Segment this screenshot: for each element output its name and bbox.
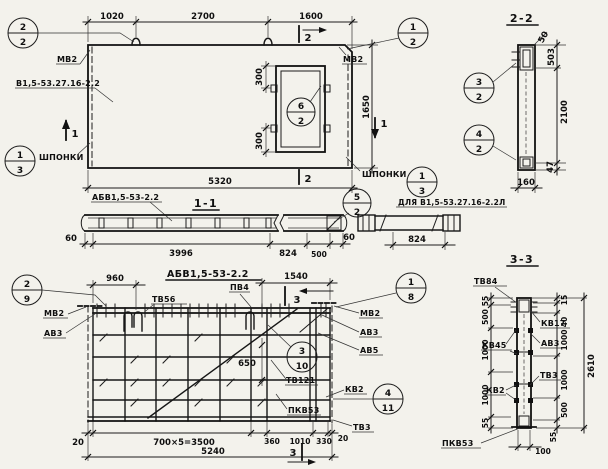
dim-824-detail: 824 (408, 235, 426, 245)
dim-1010: 1010 (290, 437, 311, 446)
cut-label-3: 3 (294, 295, 301, 306)
label-panel-mark: В1,5-53.27.16-2.2 (15, 79, 113, 102)
section-3-3: 3-3 55 500 1000 1000 55 (441, 253, 597, 456)
svg-text:КВ17: КВ17 (541, 319, 566, 328)
label-keys-right: ШПОНКИ (362, 170, 407, 179)
section-cut-1-right: 1 (371, 118, 388, 139)
label-pv4: ПВ4 (229, 283, 251, 307)
svg-text:ПКВ53: ПКВ53 (288, 406, 319, 415)
callout-num: 6 (298, 102, 304, 112)
svg-text:ПКВ53: ПКВ53 (442, 439, 473, 448)
cut-label-3: 3 (290, 448, 297, 459)
svg-text:КВ2: КВ2 (486, 386, 505, 395)
drawing-sheet: 300 300 1020 2700 1600 5320 1650 1 (0, 0, 608, 469)
dim-5320: 5320 (208, 177, 232, 187)
callout-num: 3 (299, 347, 305, 357)
section-cut-1-left: 1 (62, 119, 79, 140)
callout-3-2: 3 2 (464, 63, 516, 103)
label-mv2-right: МВ2 (339, 47, 367, 64)
svg-text:МВ2: МВ2 (57, 55, 77, 64)
dim-500-right: 500 (560, 402, 569, 418)
callout-num: 3 (476, 78, 482, 88)
callout-num: 4 (476, 130, 482, 140)
rebar-title: АБВ1,5-53-2.2 (167, 269, 249, 280)
dim-60-left: 60 (65, 234, 77, 244)
dim-330: 330 (316, 437, 332, 446)
section-2-2: 2-2 50 503 2100 47 160 3 (464, 12, 570, 193)
lifting-loop-icon (264, 38, 272, 45)
section-cut-2-bottom: 2 (299, 170, 312, 185)
dim-960: 960 (106, 274, 124, 284)
svg-text:ТВ84: ТВ84 (474, 277, 498, 286)
panel-plan-view: 300 300 1020 2700 1600 5320 1650 1 (5, 12, 437, 197)
callout-den: 3 (419, 187, 425, 197)
dim-500: 500 (311, 250, 327, 259)
reinforcement-plan: АБВ1,5-53-2.2 (12, 269, 426, 465)
svg-text:ТВ3: ТВ3 (353, 423, 371, 432)
callout-1-8: 1 8 (336, 273, 426, 307)
dim-5240: 5240 (201, 447, 225, 457)
cut-label-2: 2 (305, 33, 312, 44)
callout-keys-right: 1 3 ШПОНКИ (346, 157, 437, 197)
dim-55-top-left: 55 (481, 296, 490, 306)
svg-text:МВ2: МВ2 (343, 55, 363, 64)
callout-num: 1 (408, 278, 414, 288)
callout-den: 2 (476, 145, 482, 155)
dim-1600: 1600 (299, 12, 323, 22)
callout-4-2: 4 2 (464, 125, 516, 160)
cut-label-2: 2 (305, 174, 312, 185)
section-1-1-title: 1-1 (194, 197, 218, 210)
dim-100: 100 (535, 447, 551, 456)
section-cut-3-bottom: 3 (288, 444, 316, 465)
callout-den: 2 (298, 117, 304, 127)
label-tv3-section33: ТВ3 (530, 371, 561, 385)
svg-text:АВ3: АВ3 (44, 329, 62, 338)
label-tv3-rebar: ТВ3 (333, 420, 374, 432)
callout-keys-left: 1 3 ШПОНКИ (5, 143, 90, 176)
dim-2610: 2610 (587, 354, 597, 378)
rebar-hook-icon (134, 312, 142, 331)
dim-1000-right-b: 1000 (560, 370, 569, 391)
callout-6-2: 6 2 (287, 86, 321, 127)
rebar-hook-icon (246, 312, 254, 329)
callout-num: 4 (385, 389, 391, 399)
callout-den: 3 (17, 166, 23, 176)
svg-text:ТВ56: ТВ56 (152, 295, 176, 304)
svg-text:ТВ121: ТВ121 (286, 376, 315, 385)
callout-num: 2 (20, 23, 26, 33)
dim-3996: 3996 (169, 249, 193, 259)
dim-503: 503 (547, 48, 557, 66)
dim-20-left: 20 (72, 438, 84, 448)
callout-num: 1 (17, 151, 23, 161)
callout-4-11: 4 11 (333, 384, 403, 414)
dim-1000-right-a: 1000 (560, 330, 569, 351)
section-cut-2-top: 2 (299, 26, 327, 44)
dim-55-bottom-left: 55 (481, 418, 490, 428)
dim-opening-top: 300 (255, 68, 265, 86)
callout-den: 9 (24, 295, 30, 305)
dim-1020: 1020 (100, 12, 124, 22)
callout-num: 1 (419, 172, 425, 182)
callout-den: 2 (476, 93, 482, 103)
callout-den: 10 (296, 362, 309, 372)
callout-den: 2 (20, 38, 26, 48)
detail-824-label: ДЛЯ В1,5-53.27.16-2.2Л (398, 198, 505, 207)
dim-opening-bottom: 300 (255, 132, 265, 150)
label-keys-left: ШПОНКИ (39, 153, 84, 162)
svg-text:АВ3: АВ3 (360, 328, 378, 337)
label-pkv53-section33: ПКВ53 (441, 428, 520, 448)
callout-num: 2 (24, 280, 30, 290)
section-2-2-title: 2-2 (510, 12, 534, 25)
callout-den: 11 (382, 404, 395, 414)
dim-50: 50 (537, 30, 552, 45)
callout-1-2: 1 2 (347, 18, 428, 49)
dim-500-left: 500 (481, 309, 490, 325)
callout-num: 5 (354, 193, 360, 203)
svg-text:КВ45: КВ45 (482, 341, 507, 350)
label-abv-mark: АБВ1,5-53-2.2 (91, 193, 172, 221)
label-mv2-rebar-left: МВ2 (43, 307, 86, 318)
callout-den: 2 (354, 208, 360, 218)
panel-drawing: 300 300 1020 2700 1600 5320 1650 1 (0, 0, 608, 469)
dim-60-right: 60 (343, 233, 355, 243)
cut-label-1: 1 (72, 129, 79, 140)
section-3-3-title: 3-3 (510, 253, 534, 266)
label-tv56: ТВ56 (142, 295, 187, 314)
dim-20-right: 20 (338, 434, 348, 443)
callout-num: 1 (410, 23, 416, 33)
dim-1650: 1650 (362, 95, 372, 119)
cut-label-1: 1 (381, 119, 388, 130)
svg-text:В1,5-53.27.16-2.2: В1,5-53.27.16-2.2 (16, 79, 100, 88)
dim-160: 160 (517, 178, 535, 188)
svg-text:АВ5: АВ5 (360, 346, 379, 355)
dim-47: 47 (546, 161, 556, 173)
dim-824: 824 (279, 249, 297, 259)
dim-2700: 2700 (191, 12, 215, 22)
label-tv84: ТВ84 (473, 277, 517, 303)
section-1-1: 1-1 АБВ1,5-53-2.2 (65, 189, 371, 259)
dim-360: 360 (264, 437, 280, 446)
svg-text:МВ2: МВ2 (360, 309, 380, 318)
dim-1540: 1540 (284, 272, 308, 282)
rebar-grid (88, 308, 330, 421)
svg-text:КВ2: КВ2 (345, 385, 364, 394)
label-av3-section33: АВ3 (530, 333, 563, 348)
callout-den: 8 (408, 293, 414, 303)
dim-650: 650 (238, 359, 256, 369)
svg-text:АВ3: АВ3 (541, 339, 559, 348)
detail-824: ДЛЯ В1,5-53.27.16-2.2Л 824 (358, 198, 507, 250)
svg-text:АБВ1,5-53-2.2: АБВ1,5-53-2.2 (92, 193, 159, 202)
label-mv2-rebar-right: МВ2 (334, 306, 383, 318)
dim-2100: 2100 (560, 100, 570, 124)
dim-15-right: 15 (560, 295, 569, 305)
callout-den: 2 (410, 38, 416, 48)
svg-text:ПВ4: ПВ4 (230, 283, 249, 292)
label-tv121: ТВ121 (271, 360, 318, 385)
svg-text:МВ2: МВ2 (44, 309, 64, 318)
dim-55-right: 55 (549, 432, 558, 442)
svg-text:ТВ3: ТВ3 (540, 371, 558, 380)
label-pkv53-rebar: ПКВ53 (276, 394, 321, 415)
callout-2-9: 2 9 (12, 275, 106, 306)
label-mv2-left: МВ2 (56, 50, 90, 64)
